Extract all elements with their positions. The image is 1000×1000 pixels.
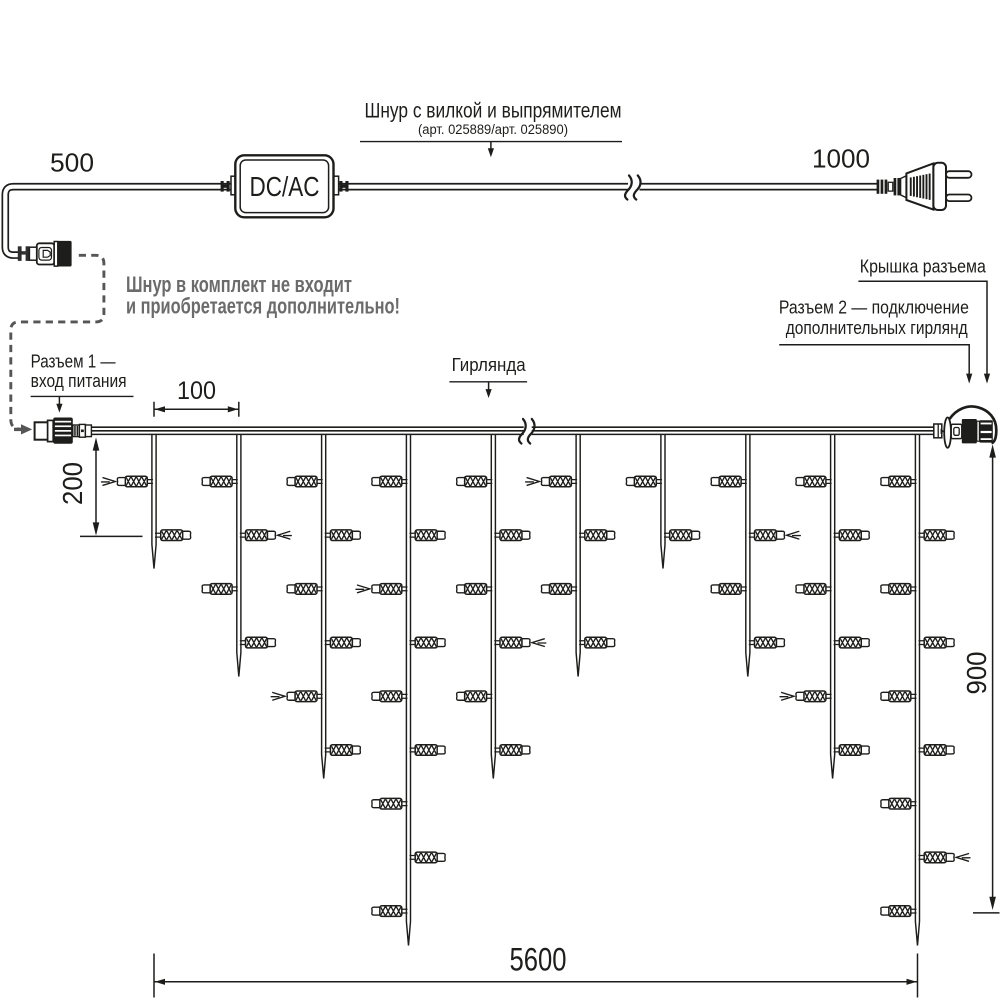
svg-text:вход питания: вход питания bbox=[31, 371, 127, 391]
svg-text:Шнур с вилкой и выпрямителем: Шнур с вилкой и выпрямителем bbox=[365, 98, 622, 122]
svg-text:Гирлянда: Гирлянда bbox=[452, 355, 527, 375]
svg-text:500: 500 bbox=[50, 148, 94, 178]
svg-text:Разъем 1 —: Разъем 1 — bbox=[31, 352, 116, 372]
svg-text:1000: 1000 bbox=[812, 144, 870, 174]
svg-text:5600: 5600 bbox=[510, 942, 567, 978]
svg-text:DC/AC: DC/AC bbox=[250, 171, 320, 202]
svg-text:и приобретается дополнительно!: и приобретается дополнительно! bbox=[126, 293, 400, 318]
svg-text:(арт. 025889/арт. 025890): (арт. 025889/арт. 025890) bbox=[418, 122, 568, 137]
svg-text:Крышка разъема: Крышка разъема bbox=[860, 257, 987, 277]
svg-text:900: 900 bbox=[961, 652, 992, 695]
svg-text:дополнительных гирлянд: дополнительных гирлянд bbox=[786, 318, 968, 338]
svg-text:Разъем 2 — подключение: Разъем 2 — подключение bbox=[779, 298, 969, 318]
svg-text:200: 200 bbox=[57, 462, 88, 505]
svg-text:100: 100 bbox=[177, 377, 216, 405]
